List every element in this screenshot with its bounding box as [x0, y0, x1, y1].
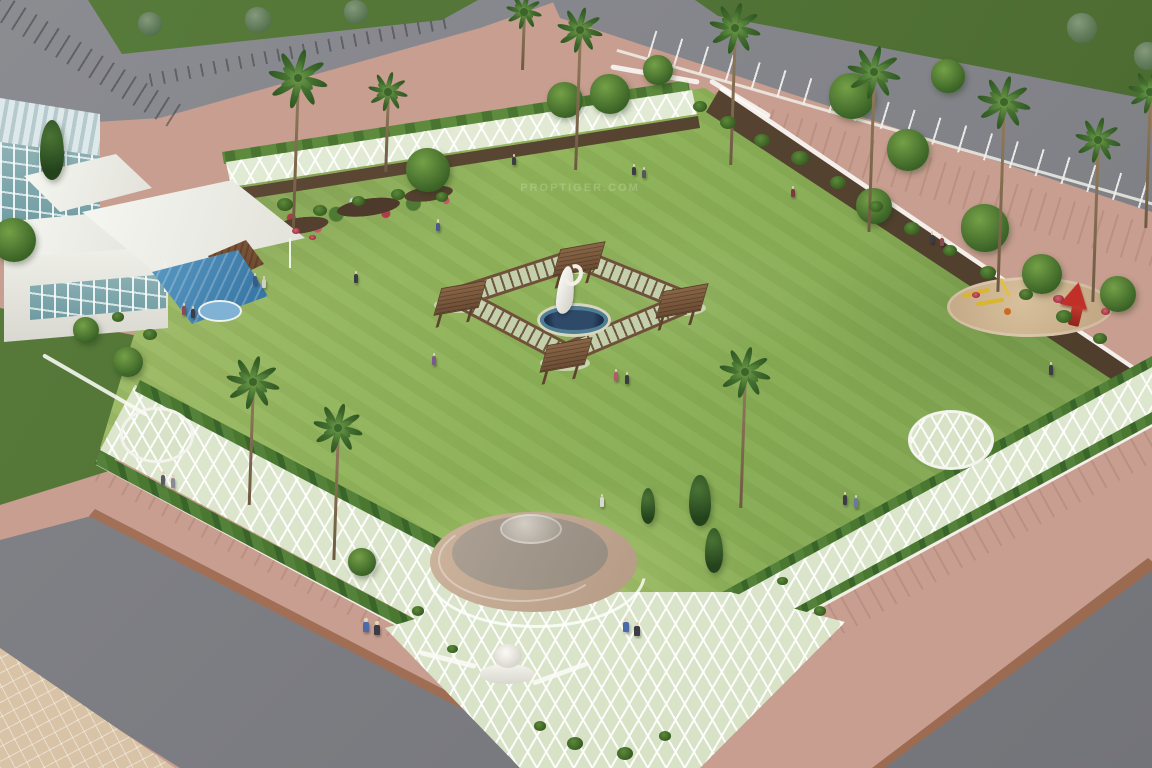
- person-figure: [940, 238, 944, 247]
- person-figure: [436, 223, 440, 232]
- bush: [143, 329, 157, 340]
- flower-bush: [1101, 308, 1110, 315]
- person-figure: [623, 622, 628, 633]
- person-figure: [374, 625, 379, 636]
- palm-crown-center: [731, 24, 739, 32]
- palm-crown-center: [576, 26, 584, 34]
- tree: [113, 347, 143, 377]
- bush: [980, 266, 996, 279]
- bush: [1056, 310, 1072, 323]
- tree: [643, 55, 673, 85]
- flower-bush: [972, 292, 980, 298]
- bush: [904, 222, 920, 235]
- flower-bush: [309, 235, 316, 241]
- person-figure: [171, 478, 176, 488]
- person-figure: [614, 372, 619, 381]
- person-figure: [600, 497, 605, 506]
- tree: [245, 7, 271, 33]
- palm-crown-center: [384, 88, 392, 96]
- bush: [617, 747, 633, 760]
- person-figure: [843, 495, 848, 504]
- bush: [1093, 333, 1107, 344]
- tree: [40, 120, 65, 180]
- tree: [0, 218, 36, 262]
- bush: [534, 721, 546, 731]
- tree: [138, 12, 162, 36]
- tree: [406, 148, 450, 192]
- bush: [277, 198, 293, 211]
- bush: [791, 151, 809, 165]
- tree: [689, 475, 710, 526]
- tree: [1022, 254, 1062, 294]
- bush: [391, 189, 405, 200]
- scenery-layer: [0, 0, 1152, 768]
- person-figure: [1049, 365, 1054, 374]
- tree: [931, 59, 965, 93]
- person-figure: [363, 622, 368, 633]
- palm-crown-center: [520, 8, 528, 16]
- bush: [436, 192, 448, 202]
- person-figure: [632, 167, 636, 175]
- palm-trunk: [1091, 140, 1100, 302]
- park-aerial-render: PROPTIGER.COM: [0, 0, 1152, 768]
- tree: [1134, 42, 1152, 70]
- palm-crown-center: [249, 378, 257, 386]
- person-figure: [512, 157, 516, 165]
- palm-crown-center: [334, 424, 342, 432]
- palm-crown-center: [1094, 136, 1102, 144]
- flower-bush: [292, 228, 300, 234]
- tree: [641, 488, 656, 524]
- bush: [313, 205, 327, 216]
- bush: [754, 134, 770, 147]
- person-figure: [854, 498, 859, 507]
- person-figure: [262, 279, 267, 288]
- flower-bush: [1053, 295, 1064, 304]
- bush: [814, 606, 826, 616]
- person-figure: [791, 189, 795, 197]
- bush: [412, 606, 424, 616]
- tree: [887, 129, 929, 171]
- bush: [447, 645, 458, 654]
- tree: [73, 317, 99, 343]
- person-figure: [191, 309, 196, 318]
- tree: [344, 0, 368, 24]
- person-figure: [625, 375, 630, 384]
- palm-crown-center: [1000, 98, 1008, 106]
- tree: [1100, 276, 1136, 312]
- palm-crown-center: [1146, 88, 1152, 96]
- bush: [693, 101, 707, 112]
- person-figure: [253, 276, 258, 285]
- bush: [777, 577, 788, 586]
- palm-crown-center: [741, 368, 749, 376]
- tree: [1067, 13, 1097, 43]
- person-figure: [182, 306, 187, 315]
- person-figure: [354, 274, 359, 283]
- person-figure: [634, 626, 639, 637]
- palm-crown-center: [870, 68, 878, 76]
- tree: [590, 74, 630, 114]
- bush: [720, 116, 736, 129]
- person-figure: [642, 170, 646, 178]
- bush: [943, 245, 957, 256]
- person-figure: [161, 475, 166, 485]
- person-figure: [930, 235, 934, 244]
- bush: [659, 731, 671, 741]
- bush: [830, 176, 846, 189]
- bush: [1019, 289, 1033, 300]
- person-figure: [432, 356, 437, 365]
- tree: [705, 528, 724, 573]
- bush: [352, 196, 365, 206]
- bush: [112, 312, 124, 322]
- palm-crown-center: [294, 74, 302, 82]
- tree: [348, 548, 376, 576]
- palm-trunk: [996, 102, 1006, 292]
- bush: [567, 737, 583, 750]
